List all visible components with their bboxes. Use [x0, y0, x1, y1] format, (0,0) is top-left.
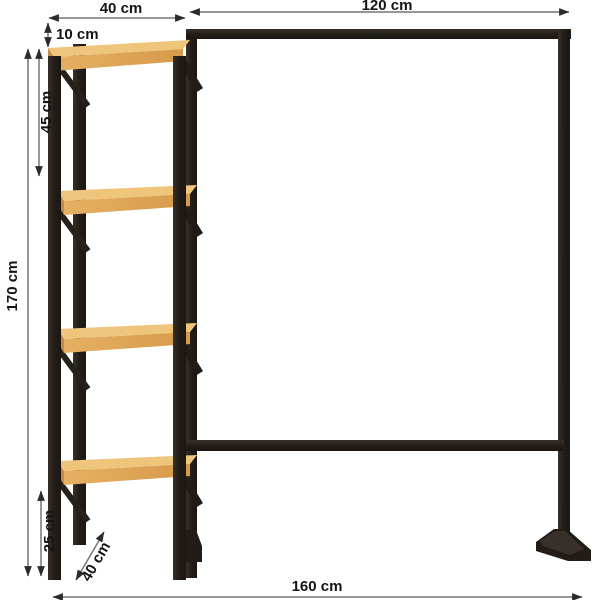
rack-top-rail: [186, 29, 571, 39]
dimension-rail-width-label: 120 cm: [362, 0, 413, 14]
dimension-total-height-label: 170 cm: [4, 261, 21, 312]
dimension-shelf-width-label: 40 cm: [100, 0, 143, 17]
shelf-front-right-post: [173, 56, 186, 580]
diagram-canvas: 40 cm 120 cm 10 cm 45 cm 170 cm 25 cm 40…: [0, 0, 600, 600]
dimension-bottom-clearance-label: 25 cm: [41, 510, 58, 553]
rack-right-post: [558, 29, 570, 534]
dimension-top-offset-label: 10 cm: [56, 26, 99, 43]
shelf-front-left-post: [48, 56, 61, 580]
rack-bottom-rail: [186, 440, 564, 451]
rack-dimension-diagram: 40 cm 120 cm 10 cm 45 cm 170 cm 25 cm 40…: [0, 0, 600, 600]
background: [0, 0, 600, 600]
dimension-shelf-spacing-label: 45 cm: [38, 91, 55, 134]
dimension-total-width-label: 160 cm: [292, 578, 343, 595]
